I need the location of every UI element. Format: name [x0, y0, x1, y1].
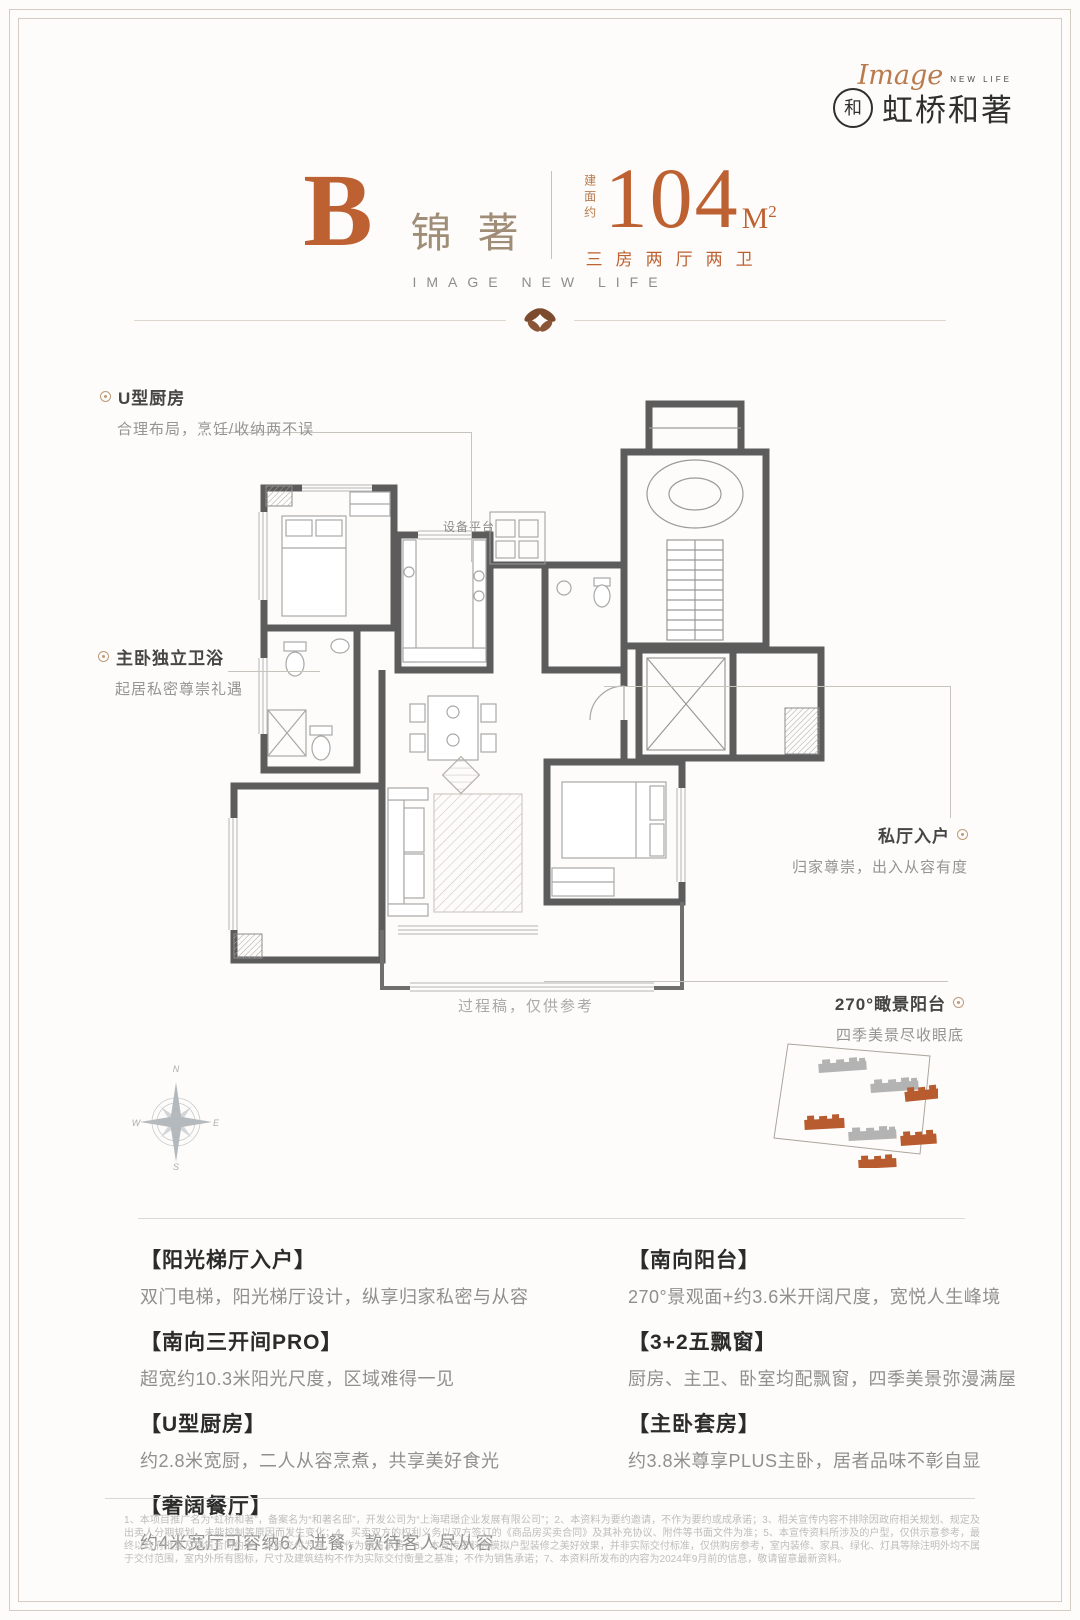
callout-master-bath: 主卧独立卫浴 起居私密尊崇礼遇: [98, 644, 243, 699]
unit-letter: B: [303, 163, 372, 259]
feature-item: 【南向三开间PRO】 超宽约10.3米阳光尺度，区域难得一见: [140, 1326, 600, 1391]
site-map: [770, 1026, 938, 1168]
callout-master-bath-desc: 起居私密尊崇礼遇: [98, 678, 243, 699]
callout-master-bath-title: 主卧独立卫浴: [116, 644, 224, 669]
leader-kitchen-v: [471, 432, 472, 562]
feature-title: 【南向阳台】: [628, 1244, 1028, 1274]
disclaimer-text: 1、本项目推广名为“虹桥和著”，备案名为“和著名邸”，开发公司为“上海珺璟企业发…: [124, 1514, 980, 1566]
feature-title: 【U型厨房】: [140, 1408, 600, 1438]
title-divider: [551, 171, 552, 259]
unit-name: 锦著: [411, 199, 545, 259]
butterfly-icon: [522, 305, 558, 335]
leader-hall-h: [604, 686, 951, 687]
callout-kitchen: U型厨房 合理布局，烹饪/收纳两不误: [100, 384, 314, 439]
feature-title: 【主卧套房】: [628, 1408, 1028, 1438]
feature-title: 【阳光梯厅入户】: [140, 1244, 600, 1274]
feature-item: 【南向阳台】 270°景观面+约3.6米开阔尺度，宽悦人生峰境: [628, 1244, 1028, 1309]
callout-private-hall-desc: 归家尊崇，出入从容有度: [760, 856, 968, 877]
area-prefix: 建面约: [582, 174, 599, 222]
feature-desc: 约3.8米尊享PLUS主卧，居者品味不彰自显: [628, 1447, 1028, 1473]
svg-text:N: N: [173, 1064, 180, 1074]
callout-dot-icon: [100, 391, 111, 402]
svg-text:W: W: [132, 1118, 142, 1128]
callout-dot-icon: [98, 651, 109, 662]
feature-item: 【阳光梯厅入户】 双门电梯，阳光梯厅设计，纵享归家私密与从容: [140, 1244, 600, 1309]
equipment-platform-label: 设备平台: [443, 518, 495, 535]
features-divider: [138, 1218, 965, 1219]
area-block: 建面约 104 M2 三房两厅两卫: [582, 163, 777, 270]
feature-desc: 厨房、主卫、卧室均配飘窗，四季美景弥漫满屋: [628, 1365, 1028, 1391]
leader-balcony: [544, 981, 948, 982]
compass-icon: N W E S: [130, 1060, 222, 1172]
leader-hall-v: [950, 686, 951, 818]
callout-dot-icon: [957, 829, 968, 840]
feature-column-right: 【南向阳台】 270°景观面+约3.6米开阔尺度，宽悦人生峰境 【3+2五飘窗】…: [628, 1244, 1028, 1490]
slogan: IMAGE NEW LIFE: [0, 274, 1080, 290]
svg-text:E: E: [213, 1118, 220, 1128]
layout-tags: 三房两厅两卫: [582, 245, 777, 270]
callout-balcony-title: 270°瞰景阳台: [835, 990, 946, 1015]
feature-item: 【主卧套房】 约3.8米尊享PLUS主卧，居者品味不彰自显: [628, 1408, 1028, 1473]
plan-stair: [647, 428, 743, 640]
floor-plan: [222, 390, 922, 1020]
ornament-row: [0, 305, 1080, 335]
brand-seal-icon: 和: [833, 88, 873, 128]
brand-name: 虹桥和著: [882, 85, 1014, 130]
feature-item: 【3+2五飘窗】 厨房、主卫、卧室均配飘窗，四季美景弥漫满屋: [628, 1326, 1028, 1391]
disclaimer-divider: [105, 1498, 975, 1499]
callout-private-hall: 私厅入户 归家尊崇，出入从容有度: [760, 822, 968, 877]
callout-private-hall-title: 私厅入户: [878, 822, 950, 847]
area-unit: M2: [742, 203, 777, 234]
feature-title: 【3+2五飘窗】: [628, 1326, 1028, 1356]
callout-kitchen-desc: 合理布局，烹饪/收纳两不误: [100, 418, 314, 439]
feature-item: 【U型厨房】 约2.8米宽厨，二人从容烹煮，共享美好食光: [140, 1408, 600, 1473]
brand-logo: Image NEW LIFE 和 虹桥和著: [833, 62, 1014, 130]
callout-dot-icon: [953, 997, 964, 1008]
area-value: 104: [605, 163, 740, 234]
ornament-line-left: [134, 320, 506, 321]
feature-desc: 超宽约10.3米阳光尺度，区域难得一见: [140, 1365, 600, 1391]
site-buildings-orange: [804, 1084, 938, 1168]
plan-elevator: [647, 658, 725, 750]
svg-text:S: S: [173, 1162, 179, 1172]
draft-note: 过程稿，仅供参考: [458, 995, 594, 1016]
feature-desc: 约2.8米宽厨，二人从容烹煮，共享美好食光: [140, 1447, 600, 1473]
feature-desc: 270°景观面+约3.6米开阔尺度，宽悦人生峰境: [628, 1283, 1028, 1309]
ornament-line-right: [574, 320, 946, 321]
feature-desc: 双门电梯，阳光梯厅设计，纵享归家私密与从容: [140, 1283, 600, 1309]
title-block: B 锦著 建面约 104 M2 三房两厅两卫: [0, 163, 1080, 270]
feature-title: 【南向三开间PRO】: [140, 1326, 600, 1356]
callout-kitchen-title: U型厨房: [118, 384, 185, 409]
floorplan-poster: Image NEW LIFE 和 虹桥和著 B 锦著 建面约 104 M2 三房…: [0, 0, 1080, 1620]
